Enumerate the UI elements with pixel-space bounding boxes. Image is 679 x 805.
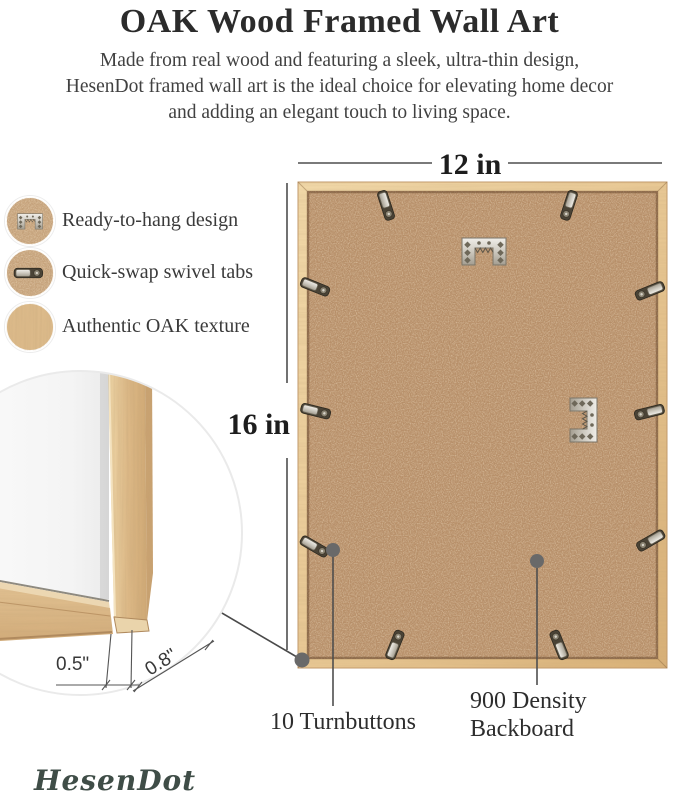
width-dimension-label: 12 in <box>439 148 502 181</box>
oak-texture-icon <box>5 302 56 353</box>
height-dimension-label: 16 in <box>227 408 290 441</box>
swivel-tab-icon <box>5 248 56 299</box>
frame-back-illustration <box>298 182 667 668</box>
feature-label-swivel-tabs: Quick-swap swivel tabs <box>62 261 253 284</box>
mat-board <box>0 371 109 600</box>
sawtooth-hanger-icon <box>5 196 56 247</box>
feature-label-ready-to-hang: Ready-to-hang design <box>62 209 238 232</box>
feature-label-oak-texture: Authentic OAK texture <box>62 315 250 338</box>
turnbuttons-callout-label: 10 Turnbuttons <box>270 709 416 736</box>
brand-logo: HesenDot <box>34 764 196 797</box>
backboard-callout-dot <box>530 554 544 568</box>
backboard-callout-line2: Backboard <box>470 715 587 743</box>
feature-badges <box>5 196 56 353</box>
subtitle: Made from real wood and featuring a slee… <box>0 48 679 126</box>
corner-callout-dot <box>295 653 310 668</box>
subtitle-line: and adding an elegant touch to living sp… <box>0 100 679 126</box>
backboard-callout-line1: 900 Density <box>470 687 587 715</box>
subtitle-line: Made from real wood and featuring a slee… <box>0 48 679 74</box>
backboard-callout-label: 900 Density Backboard <box>470 687 587 743</box>
face-width-label: 0.5" <box>56 654 89 675</box>
turnbuttons-callout-dot <box>326 543 340 557</box>
subtitle-line: HesenDot framed wall art is the ideal ch… <box>0 74 679 100</box>
page-title: OAK Wood Framed Wall Art <box>0 3 679 41</box>
product-infographic: 12 in 16 in <box>0 0 679 805</box>
